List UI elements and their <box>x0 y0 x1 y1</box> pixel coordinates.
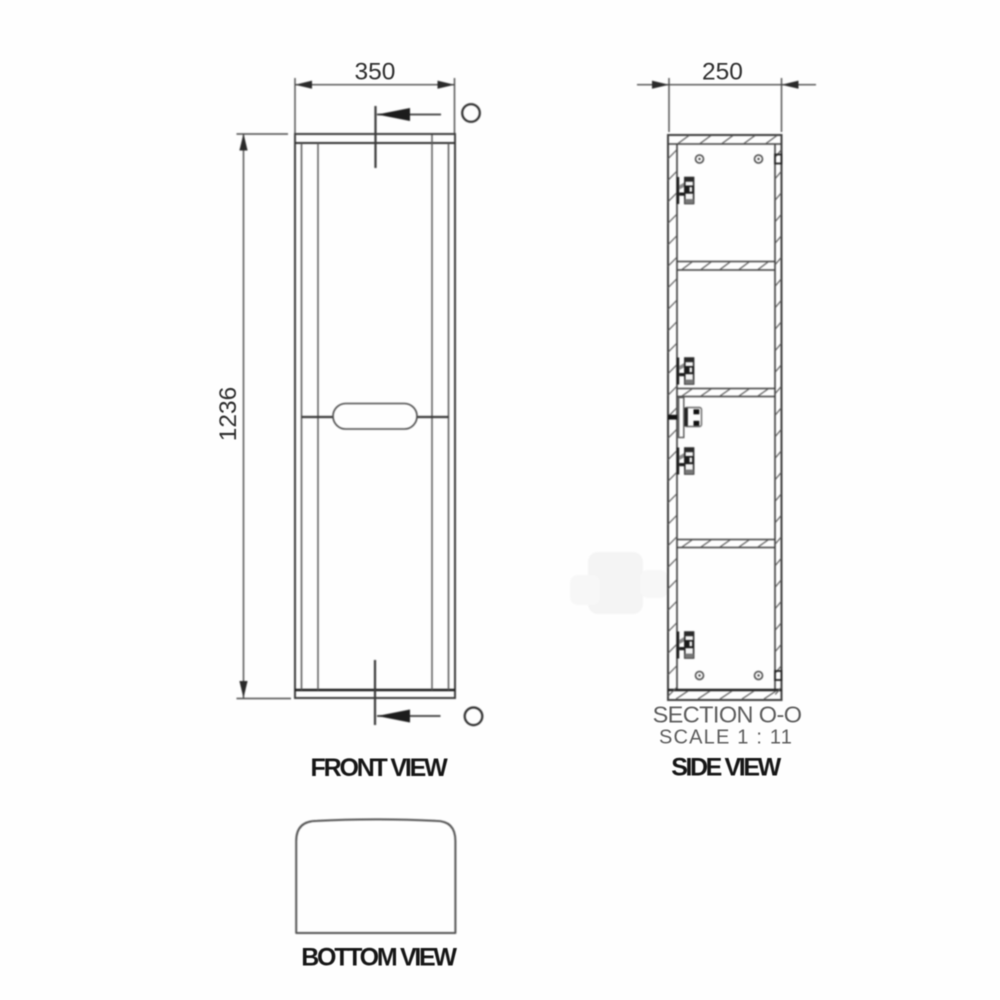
svg-text:250: 250 <box>702 59 743 86</box>
svg-text:1236: 1236 <box>215 387 242 442</box>
svg-text:SCALE 1 : 11: SCALE 1 : 11 <box>659 727 793 749</box>
svg-text:350: 350 <box>355 59 396 86</box>
svg-text:SECTION O-O: SECTION O-O <box>653 702 802 728</box>
svg-text:SIDE VIEW: SIDE VIEW <box>671 754 781 782</box>
svg-text:FRONT VIEW: FRONT VIEW <box>311 754 449 782</box>
svg-text:BOTTOM VIEW: BOTTOM VIEW <box>301 944 457 972</box>
